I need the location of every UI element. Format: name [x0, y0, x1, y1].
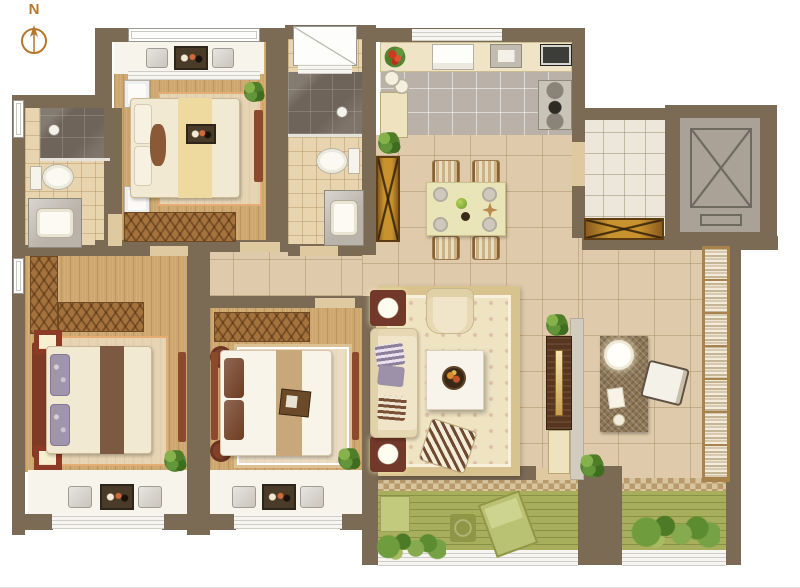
curtain-rail [178, 352, 186, 442]
flower-pot [382, 44, 408, 70]
plate [482, 187, 497, 202]
pillow [50, 354, 70, 396]
cup [613, 414, 625, 426]
console-cabinet [376, 156, 400, 242]
plants [628, 510, 720, 550]
cushion [377, 365, 405, 388]
bay-tray [174, 46, 208, 70]
bed-tray [279, 389, 312, 418]
plant [336, 446, 362, 472]
shower-glass [288, 134, 362, 137]
fridge [432, 44, 474, 70]
curtain-rail [352, 352, 359, 440]
tea-set [384, 70, 410, 94]
plant [544, 312, 570, 338]
curtain-rail [211, 352, 218, 440]
fruit [456, 198, 467, 209]
pillow-decor [150, 124, 166, 166]
plant [578, 452, 606, 480]
kitchen-sink [490, 44, 522, 68]
bed-tray [186, 124, 216, 144]
plants [374, 528, 446, 562]
bay-cushion [212, 48, 234, 68]
bay-cushion [68, 486, 92, 508]
toilet [316, 148, 348, 174]
toilet-tank [30, 166, 42, 190]
shower-head [336, 106, 348, 118]
dining-chair [472, 236, 500, 260]
lamp-table [370, 436, 406, 472]
dining-chair [472, 160, 500, 184]
elevator-door-slot [700, 214, 742, 226]
bay-cushion [300, 486, 324, 508]
cushion [375, 342, 406, 368]
bowl [461, 212, 470, 221]
wardrobe [30, 256, 58, 334]
dining-chair [432, 160, 460, 184]
serving-tray [442, 366, 466, 390]
pillow [224, 400, 244, 440]
tall-cabinet [254, 110, 263, 182]
plate [433, 217, 448, 232]
shower-head [48, 124, 60, 136]
dining-chair [432, 236, 460, 260]
wardrobe [58, 302, 144, 332]
toilet-tank [348, 148, 360, 174]
toilet [42, 164, 74, 190]
sink [330, 200, 358, 236]
plant [376, 130, 402, 156]
bay-tray [262, 484, 296, 510]
elevator-cross [690, 128, 752, 208]
plate [482, 217, 497, 232]
bay-tray [100, 484, 134, 510]
furniture-layer [0, 0, 800, 587]
small-appliance [540, 44, 572, 66]
wardrobe [214, 312, 310, 342]
bay-cushion [138, 486, 162, 508]
floor-mat [380, 496, 410, 532]
side-table [450, 514, 476, 542]
sink [36, 208, 74, 238]
plant [242, 80, 266, 104]
plate [433, 187, 448, 202]
pillow [50, 404, 70, 446]
storage-bench [124, 212, 236, 242]
lamp-table [370, 290, 406, 326]
lounge-mat [478, 490, 538, 558]
tv-screen [555, 350, 563, 416]
bookshelf [702, 246, 730, 482]
bay-cushion [146, 48, 168, 68]
plant [162, 448, 188, 474]
bay-cushion [232, 486, 256, 508]
paper [607, 387, 626, 409]
cushion [377, 395, 407, 421]
bed-runner [178, 98, 212, 198]
floor-plan: N [0, 0, 800, 588]
armchair [426, 288, 474, 334]
pillow [224, 358, 244, 398]
desk-lamp [604, 340, 634, 370]
headboard [32, 342, 46, 458]
side-cabinet [548, 430, 570, 474]
cooktop [538, 80, 572, 130]
shoe-cabinet [584, 218, 664, 240]
bed-runner [100, 346, 124, 454]
shower-glass [40, 158, 110, 161]
